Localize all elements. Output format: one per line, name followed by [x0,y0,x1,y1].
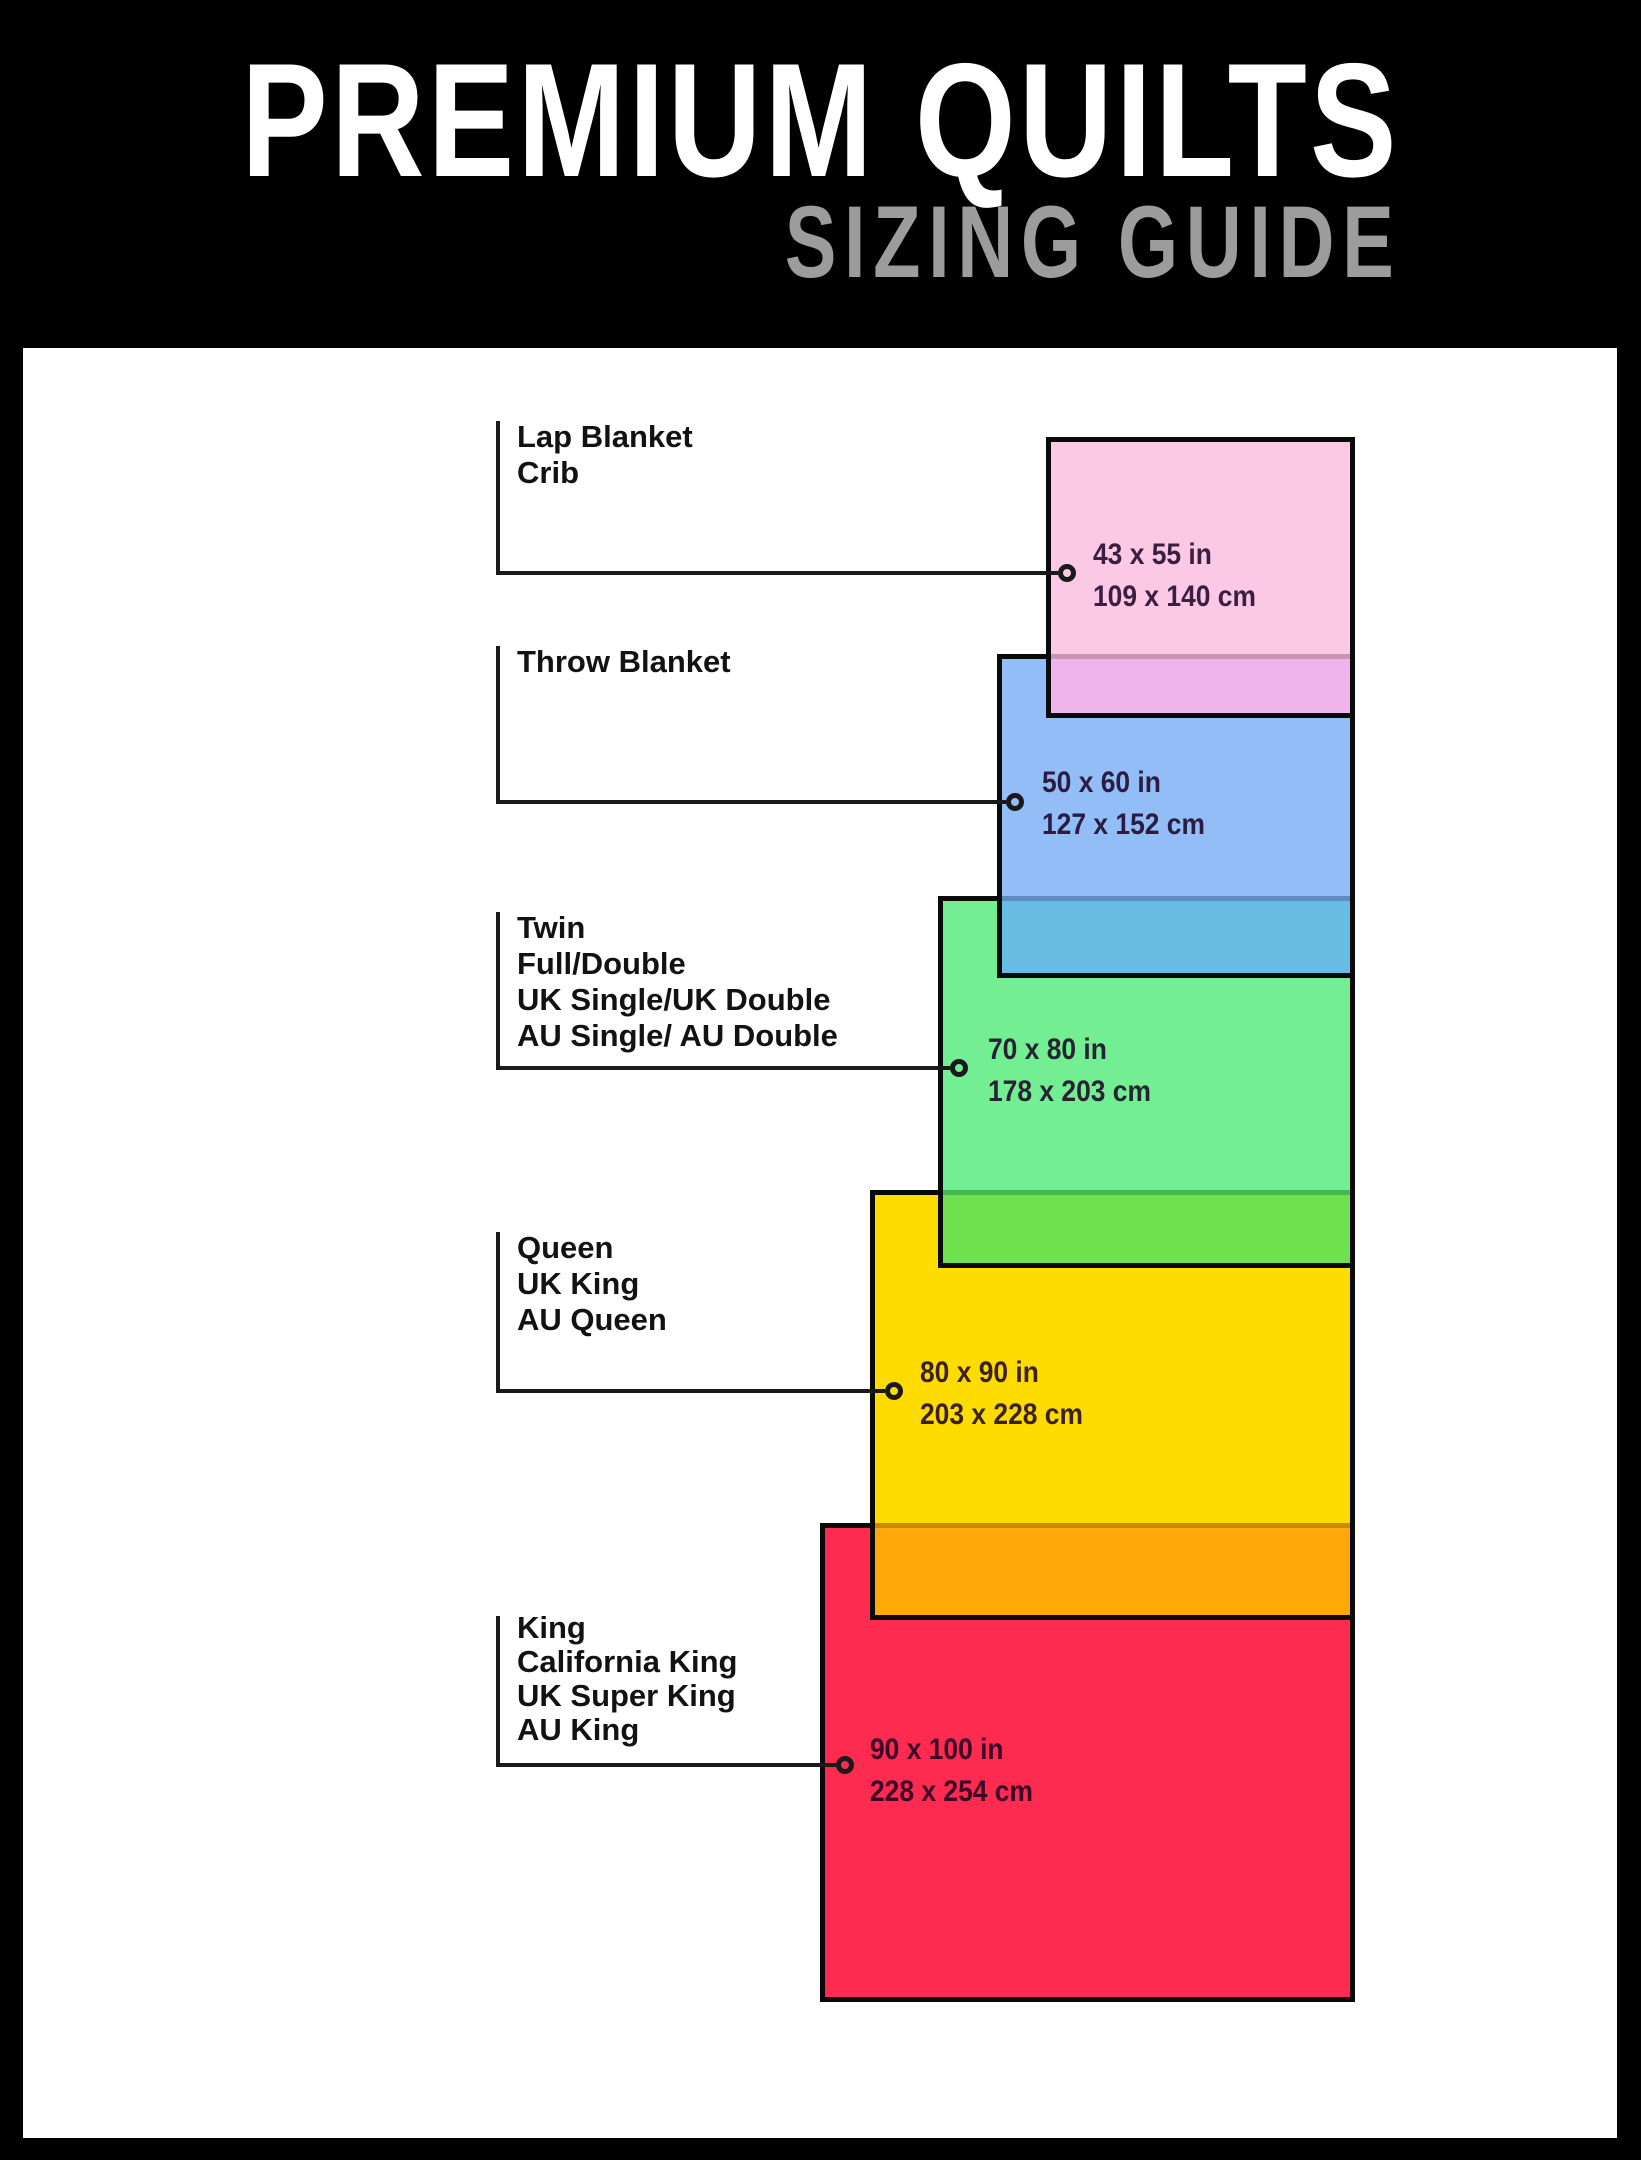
size-label-line: King [517,1611,737,1645]
overlap-divider-queen-uk-king-au-queen [875,1523,1350,1528]
dimension-cm: 178 x 203 cm [988,1071,1151,1113]
callout-vline-king-california-king [496,1616,500,1767]
page-subtitle: SIZING GUIDE [784,191,1401,293]
callout-hline-throw-blanket [498,800,1006,804]
dimension-inches: 50 x 60 in [1042,762,1205,804]
dimension-cm: 228 x 254 cm [870,1771,1033,1813]
dimension-cm: 127 x 152 cm [1042,804,1205,846]
dimension-inches: 80 x 90 in [920,1352,1083,1394]
size-label-line: UK Super King [517,1679,737,1713]
size-label-line: Queen [517,1230,667,1266]
size-label-line: AU Queen [517,1302,667,1338]
size-label-line: Throw Blanket [517,644,731,680]
callout-dot-lap-blanket-crib [1058,564,1076,582]
size-dimensions-king-california-king: 90 x 100 in228 x 254 cm [870,1729,1033,1813]
callout-dot-queen-uk-king-au-queen [885,1382,903,1400]
callout-dot-throw-blanket [1006,793,1024,811]
callout-vline-lap-blanket-crib [496,421,500,575]
dimension-cm: 203 x 228 cm [920,1394,1083,1436]
overlap-band-lap-blanket-crib [1051,654,1350,713]
size-dimensions-twin-full-double: 70 x 80 in178 x 203 cm [988,1029,1151,1113]
overlap-divider-twin-full-double [943,1190,1350,1195]
size-label-line: Crib [517,455,693,491]
size-label-line: Twin [517,910,838,946]
size-label-line: California King [517,1645,737,1679]
size-label-lap-blanket-crib: Lap BlanketCrib [517,419,693,491]
dimension-inches: 90 x 100 in [870,1729,1033,1771]
size-label-queen-uk-king-au-queen: QueenUK KingAU Queen [517,1230,667,1338]
overlap-divider-throw-blanket [1002,896,1350,901]
dimension-inches: 70 x 80 in [988,1029,1151,1071]
callout-hline-twin-full-double [498,1066,950,1070]
size-label-line: UK King [517,1266,667,1302]
callout-hline-lap-blanket-crib [498,571,1058,575]
callout-vline-queen-uk-king-au-queen [496,1232,500,1393]
size-dimensions-queen-uk-king-au-queen: 80 x 90 in203 x 228 cm [920,1352,1083,1436]
size-label-king-california-king: KingCalifornia KingUK Super KingAU King [517,1611,737,1747]
size-label-line: Lap Blanket [517,419,693,455]
quilt-sizing-infographic: { "header": { "title": "PREMIUM QUILTS",… [0,0,1641,2160]
callout-dot-king-california-king [836,1756,854,1774]
callout-vline-twin-full-double [496,912,500,1070]
overlap-band-twin-full-double [943,1190,1350,1263]
size-dimensions-lap-blanket-crib: 43 x 55 in109 x 140 cm [1093,534,1256,618]
dimension-cm: 109 x 140 cm [1093,576,1256,618]
size-label-line: AU King [517,1713,737,1747]
callout-hline-king-california-king [498,1763,836,1767]
overlap-band-queen-uk-king-au-queen [875,1523,1350,1615]
overlap-divider-lap-blanket-crib [1051,654,1350,659]
size-label-line: UK Single/UK Double [517,982,838,1018]
size-dimensions-throw-blanket: 50 x 60 in127 x 152 cm [1042,762,1205,846]
dimension-inches: 43 x 55 in [1093,534,1256,576]
overlap-band-throw-blanket [1002,896,1350,973]
size-label-twin-full-double: TwinFull/DoubleUK Single/UK DoubleAU Sin… [517,910,838,1054]
callout-dot-twin-full-double [950,1059,968,1077]
size-label-throw-blanket: Throw Blanket [517,644,731,680]
callout-hline-queen-uk-king-au-queen [498,1389,885,1393]
callout-vline-throw-blanket [496,646,500,804]
size-label-line: Full/Double [517,946,838,982]
size-label-line: AU Single/ AU Double [517,1018,838,1054]
